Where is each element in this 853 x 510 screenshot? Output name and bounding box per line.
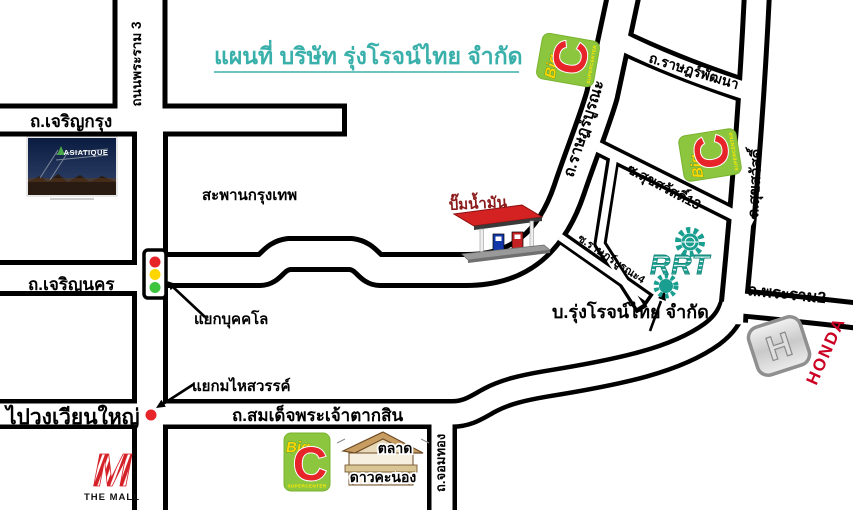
bigc-supercenter-text: SUPERCENTER: [287, 484, 326, 489]
page-title: แผนที่ บริษัท รุ่งโรจน์ไทย จำกัด: [214, 39, 523, 71]
market-label-line2: ดาวคะนอง: [350, 469, 417, 485]
mahai-sawan-marker: [146, 410, 157, 421]
road-label-chomthong: ถ.จอมทอง: [433, 434, 448, 492]
honda-logo: H HONDA: [746, 314, 850, 388]
traffic-light-green: [150, 282, 161, 293]
bigc-logo-bottom: Big C SUPERCENTER: [284, 433, 330, 491]
junction-label-mahai-sawan: แยกมไหสวรรค์: [192, 376, 291, 395]
rrt-letters: RRT: [650, 249, 712, 280]
road-label-taksin: ถ.สมเด็จพระเจ้าตากสิน: [232, 403, 403, 425]
road-label-charoen-nakhon: ถ.เจริญนคร: [28, 275, 115, 295]
traffic-light-red: [150, 257, 161, 268]
asiatique-sign-text: ASIATIQUE: [64, 148, 109, 157]
the-mall-wordmark: THE MALL: [84, 492, 140, 503]
the-mall-m: M: [93, 444, 133, 496]
bigc-logo-mid: Big C SUPERCENTER: [678, 128, 742, 183]
traffic-light-yellow: [150, 269, 161, 280]
map-stage: แผนที่ บริษัท รุ่งโรจน์ไทย จำกัด ถนนพระร…: [0, 0, 853, 510]
direction-label-wongwian-yai: ไปวงเวียนใหญ่: [4, 404, 140, 430]
company-name-label: บ.รุ่งโรจน์ไทย จำกัด: [552, 301, 709, 324]
junction-label-bukkhalo: แยกบุคคโล: [194, 309, 268, 329]
market-label-line1: ตลาด: [378, 440, 413, 456]
bigc-logo-top: Big C SUPERCENTER: [535, 32, 600, 87]
traffic-light: [144, 250, 166, 298]
rrt-logo: RRT: [650, 230, 712, 296]
the-mall-logo: M THE MALL: [84, 444, 140, 503]
map-canvas: แผนที่ บริษัท รุ่งโรจน์ไทย จำกัด ถนนพระร…: [0, 0, 853, 510]
dao-khanong-market: ตลาด ดาวคะนอง: [337, 432, 429, 485]
bigc-c-text: C: [293, 437, 327, 490]
road-label-charoen-krung: ถ.เจริญกรุง: [30, 112, 112, 132]
road-label-rama3: ถนนพระราม 3: [129, 21, 144, 107]
gas-station-label: ปั๊มน้ำมัน: [448, 190, 508, 214]
asiatique-caption: [50, 198, 94, 200]
asiatique-photo: ASIATIQUE: [27, 137, 117, 200]
landmark-label-krungthep-bridge: สะพานกรุงเทพ: [202, 187, 297, 205]
